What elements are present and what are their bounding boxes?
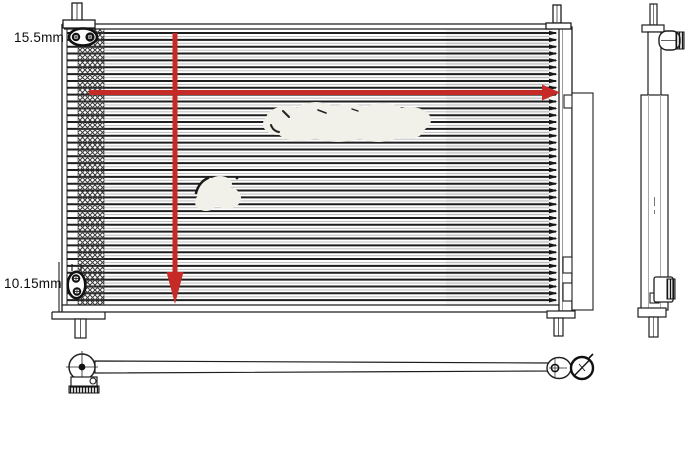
- condenser-technical-drawing: [0, 0, 699, 453]
- tube-height-label: 10.15mm: [4, 276, 62, 291]
- bottom-right-mounting-pin: [547, 311, 575, 336]
- left-end-plate: [62, 24, 67, 312]
- top-left-mounting-pin: [63, 3, 95, 28]
- bottom-view-right-fitting: [547, 354, 593, 379]
- fin-block: [78, 29, 104, 305]
- bottom-view-left-fitting: [66, 351, 99, 393]
- side-view-bottom-fitting: [650, 277, 675, 303]
- condenser-diagram-canvas: 15.5mm 10.15mm: [0, 0, 699, 453]
- pipe-bottom-view: [66, 351, 593, 393]
- erased-watermark-large: [263, 102, 431, 142]
- condenser-side-view: [638, 4, 684, 337]
- side-view-bottom-mount: [638, 308, 666, 337]
- core-shading: [446, 29, 557, 306]
- bottom-view-tube: [95, 361, 548, 373]
- receiver-drier: [559, 27, 573, 311]
- right-bracket-plate: [572, 93, 593, 310]
- top-right-mounting-pin: [546, 5, 571, 29]
- fin-height-label: 15.5mm: [14, 30, 64, 45]
- top-left-port: [69, 29, 97, 46]
- side-view-top-fitting: [659, 31, 684, 50]
- condenser-front-view: [52, 3, 593, 338]
